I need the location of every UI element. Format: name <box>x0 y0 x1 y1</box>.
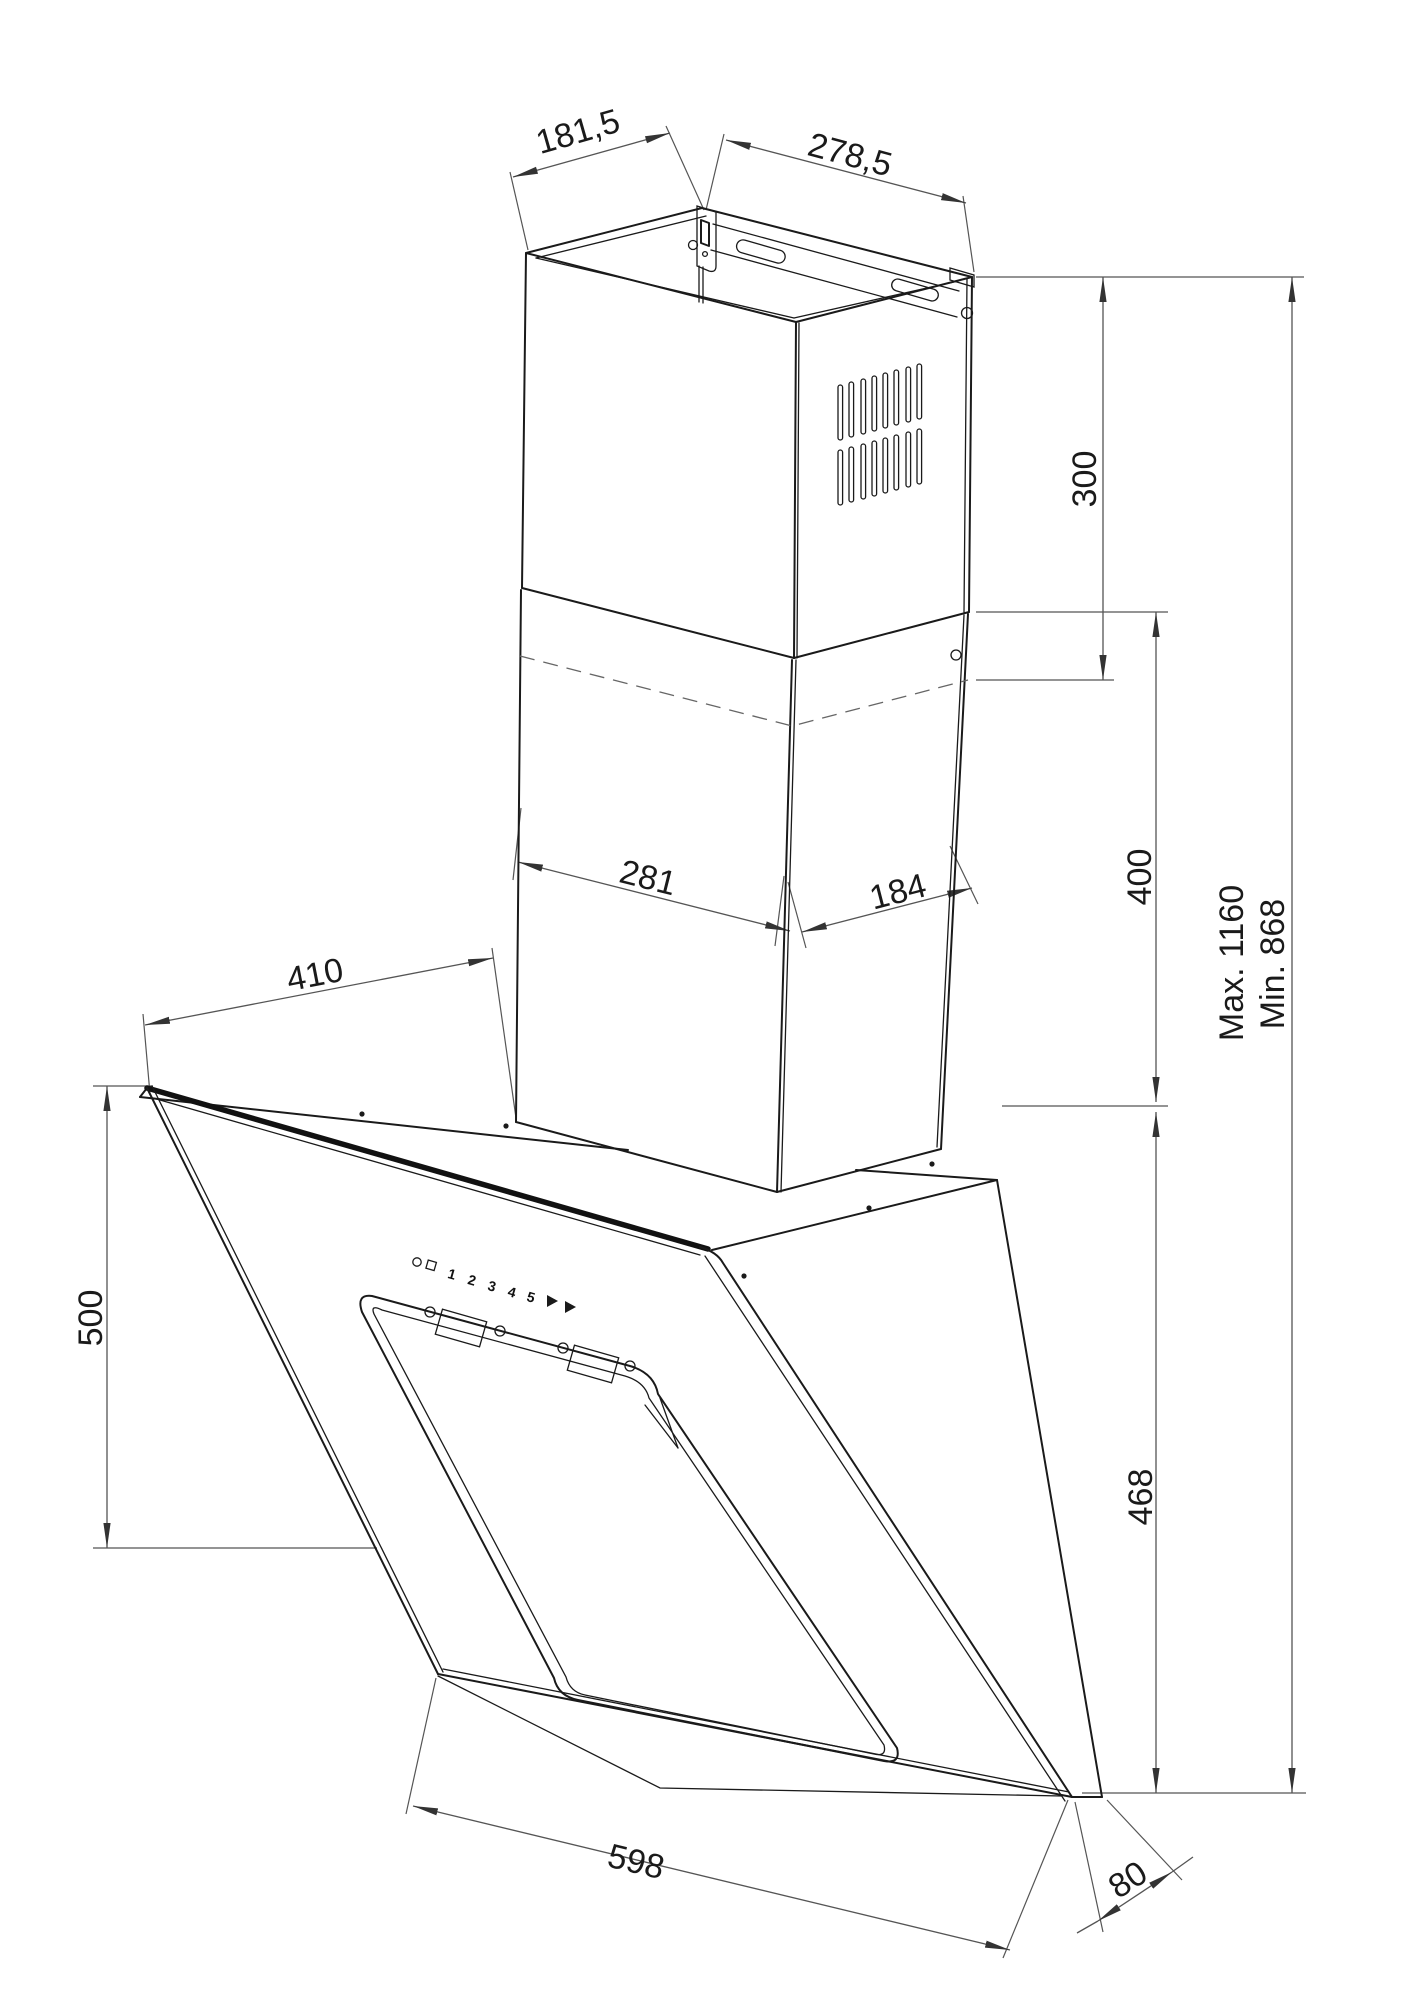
chimney-top-rim <box>526 208 972 322</box>
dim-label-top-width: 278,5 <box>804 126 896 185</box>
body-bottom-edge <box>438 1676 1062 1796</box>
speed-label-5: 5 <box>525 1288 537 1306</box>
hood-body: 1 2 3 4 5 <box>140 1086 1102 1801</box>
rivet-icon <box>866 1205 871 1210</box>
filter-recess <box>360 1296 897 1762</box>
wall-bracket <box>689 206 975 317</box>
technical-drawing-page: 1 2 3 4 5 181,5 278,5 300 400 468 Max. 1… <box>0 0 1414 2000</box>
dim-label-overall-min: Min. 868 <box>1254 899 1292 1029</box>
dim-label-front-panel: 500 <box>72 1290 110 1347</box>
speed-label-4: 4 <box>506 1283 518 1301</box>
light-square-icon <box>426 1260 437 1271</box>
control-panel: 1 2 3 4 5 <box>413 1258 576 1313</box>
screw-hole-icon <box>951 650 961 660</box>
dim-label-top-offset: 410 <box>284 951 347 999</box>
chimney-upper-section <box>522 206 974 658</box>
rivet-icon <box>929 1161 934 1166</box>
dim-label-body-width: 598 <box>604 1837 668 1887</box>
speed-label-1: 1 <box>446 1265 458 1283</box>
bracket-slot-icon <box>701 220 709 246</box>
telescope-min-line <box>520 656 968 726</box>
dim-label-body-height: 468 <box>1122 1469 1160 1526</box>
glass-top-edge <box>147 1088 708 1249</box>
dimension-lines <box>107 133 1292 1950</box>
extension-lines <box>93 126 1306 1958</box>
bracket-hook-icon <box>689 241 698 250</box>
rivet-icon <box>359 1111 364 1116</box>
rivet-icon <box>741 1273 746 1278</box>
dim-label-lower-depth: 184 <box>866 867 930 918</box>
power-circle-icon <box>413 1258 421 1266</box>
speed-label-3: 3 <box>486 1277 498 1295</box>
dim-label-bottom-depth: 80 <box>1102 1854 1154 1906</box>
dim-label-overall-max: Max. 1160 <box>1213 885 1251 1041</box>
dim-label-lower-width: 281 <box>616 853 680 904</box>
speed-label-2: 2 <box>466 1271 478 1289</box>
dim-label-lower-duct: 400 <box>1121 849 1159 906</box>
dim-line-body-width <box>413 1806 1010 1950</box>
glass-panel <box>147 1086 1072 1801</box>
chimney-joint-edge <box>522 588 794 658</box>
speed-arrow-icon <box>565 1301 576 1313</box>
dim-label-upper-duct: 300 <box>1066 451 1104 508</box>
cooker-hood-dimension-drawing: 1 2 3 4 5 181,5 278,5 300 400 468 Max. 1… <box>0 0 1414 2000</box>
rivet-icon <box>503 1123 508 1128</box>
vent-grille <box>838 364 922 505</box>
dim-label-top-depth: 181,5 <box>532 102 624 162</box>
bracket-slot-icon <box>890 278 939 303</box>
speed-arrow-icon <box>547 1295 558 1307</box>
